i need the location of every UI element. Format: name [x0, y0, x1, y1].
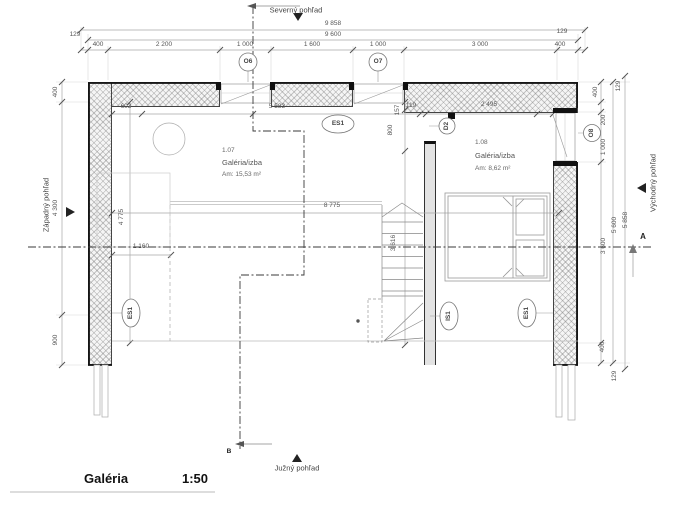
dim-right-offset-bottom: 129	[612, 371, 619, 382]
dim-top-offset-right: 129	[557, 29, 568, 36]
view-west-label: Západný pohľad	[42, 178, 50, 232]
section-b-bottom-arrow-icon	[235, 441, 244, 447]
plan-title: Galéria	[84, 471, 128, 486]
dim-left-seg-1: 4 300	[53, 200, 60, 216]
dim-right-seg-2: 1 000	[601, 139, 608, 155]
plan-scale: 1:50	[182, 471, 208, 486]
room-107-area: Am: 15,53 m²	[222, 172, 261, 179]
section-b-line	[240, 6, 304, 449]
dim-right-overall: 5 858	[623, 212, 630, 228]
plan-linework	[0, 0, 679, 507]
dim-800: 800	[388, 125, 395, 136]
dim-4775: 4 775	[119, 209, 126, 225]
dim-5583: 5 583	[269, 104, 285, 111]
dim-top-overall: 9 858	[325, 21, 341, 28]
dim-top-seg-0: 400	[93, 42, 104, 49]
dimension-lines	[62, 30, 625, 369]
room-108-area: Am: 8,62 m²	[475, 166, 510, 173]
view-east-label: Východný pohľad	[649, 154, 657, 212]
dim-8775: 8 775	[324, 203, 340, 210]
dim-right-offset-top: 129	[616, 81, 623, 92]
mark-es1-right: ES1	[524, 307, 531, 319]
mark-d2: D2	[444, 122, 451, 130]
mark-is1: IS1	[446, 311, 453, 321]
mark-o8: O8	[589, 129, 596, 138]
dim-top-inner: 9 600	[325, 32, 341, 39]
room-107-name: Galéria/izba	[222, 159, 262, 167]
dim-left-seg-0: 400	[53, 87, 60, 98]
windows	[216, 82, 577, 166]
dim-right-seg-1: 200	[601, 115, 608, 126]
room-108-name: Galéria/izba	[475, 152, 515, 160]
dim-157: 157	[395, 105, 402, 116]
dim-right-seg-0: 400	[593, 87, 600, 98]
dim-top-seg-5: 3 000	[472, 42, 488, 49]
dim-119: 119	[406, 103, 416, 110]
section-a-label: A	[640, 233, 646, 241]
dim-left-seg-2: 900	[53, 335, 60, 346]
dim-top-seg-4: 1 000	[370, 42, 386, 49]
east-arrow-icon	[637, 183, 646, 193]
room-108-number: 1.08	[475, 140, 488, 147]
mark-o6: O6	[244, 59, 253, 66]
view-north-label: Severný pohľad	[270, 6, 323, 14]
dim-1160: 1 160	[133, 244, 149, 251]
floor-plan-sheet: Severný pohľad Južný pohľad Západný pohľ…	[0, 0, 679, 507]
section-a-arrow-icon	[629, 244, 637, 253]
mark-es1-top: ES1	[332, 121, 344, 128]
dim-603: 603	[121, 104, 132, 111]
west-arrow-icon	[66, 207, 75, 217]
stairs	[356, 203, 423, 342]
dim-3616: 3 616	[391, 235, 398, 251]
dim-top-seg-3: 1 600	[304, 42, 320, 49]
dim-right-inner: 5 600	[612, 217, 619, 233]
south-arrow-icon	[292, 454, 302, 462]
dim-2495: 2 495	[481, 102, 497, 109]
view-south-label: Južný pohľad	[275, 464, 320, 472]
dim-top-seg-1: 2 200	[156, 42, 172, 49]
dim-right-seg-3: 3 600	[601, 238, 608, 254]
dim-top-offset-left: 129	[70, 32, 81, 39]
room-107-number: 1.07	[222, 148, 235, 155]
dimension-ticks	[59, 27, 628, 372]
section-b-top-arrow-icon	[247, 3, 256, 9]
bed	[445, 193, 550, 281]
dim-top-seg-2: 1 000	[237, 42, 253, 49]
dim-right-seg-4: 400	[600, 342, 607, 353]
mark-es1-left: ES1	[128, 307, 135, 319]
dim-top-seg-6: 400	[555, 42, 566, 49]
section-b-label: B	[227, 449, 232, 456]
mark-o7: O7	[374, 59, 383, 66]
